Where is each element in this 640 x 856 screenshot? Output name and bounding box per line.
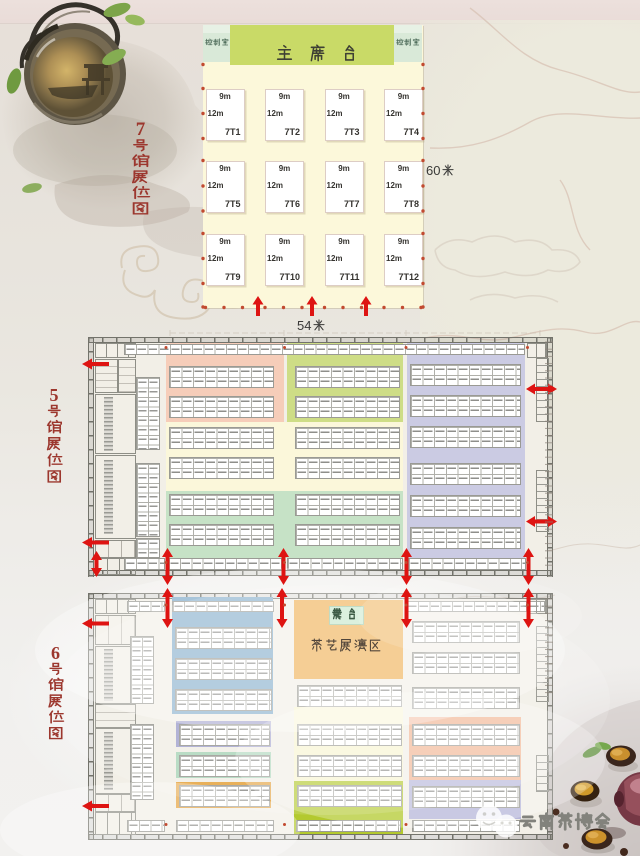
svg-text:60: 60	[426, 163, 440, 178]
svg-text:5: 5	[50, 385, 59, 405]
svg-text:6: 6	[51, 643, 60, 663]
svg-text:54: 54	[297, 318, 311, 333]
svg-text:7: 7	[136, 119, 146, 140]
